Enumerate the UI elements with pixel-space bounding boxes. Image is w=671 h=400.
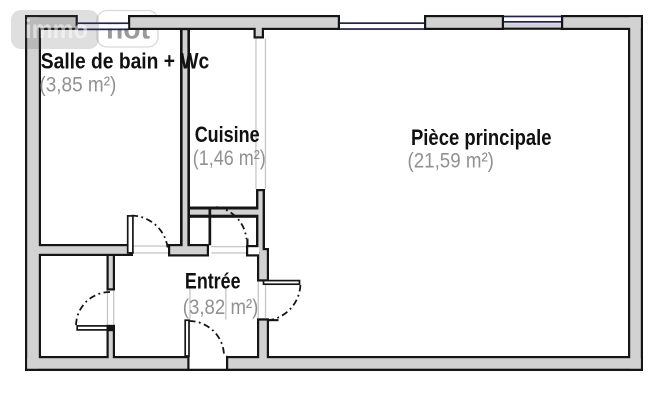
svg-text:(3,82 m²): (3,82 m²) [183,296,259,319]
svg-text:(3,85 m²): (3,85 m²) [39,74,116,97]
svg-text:Pièce principale: Pièce principale [411,126,551,150]
svg-text:Cuisine: Cuisine [195,123,260,147]
svg-text:(21,59 m²): (21,59 m²) [408,150,494,173]
svg-text:Entrée: Entrée [185,270,241,294]
svg-text:(1,46 m²): (1,46 m²) [193,147,266,171]
svg-text:Salle de bain + Wc: Salle de bain + Wc [41,49,209,73]
svg-text:immo: immo [25,14,88,44]
